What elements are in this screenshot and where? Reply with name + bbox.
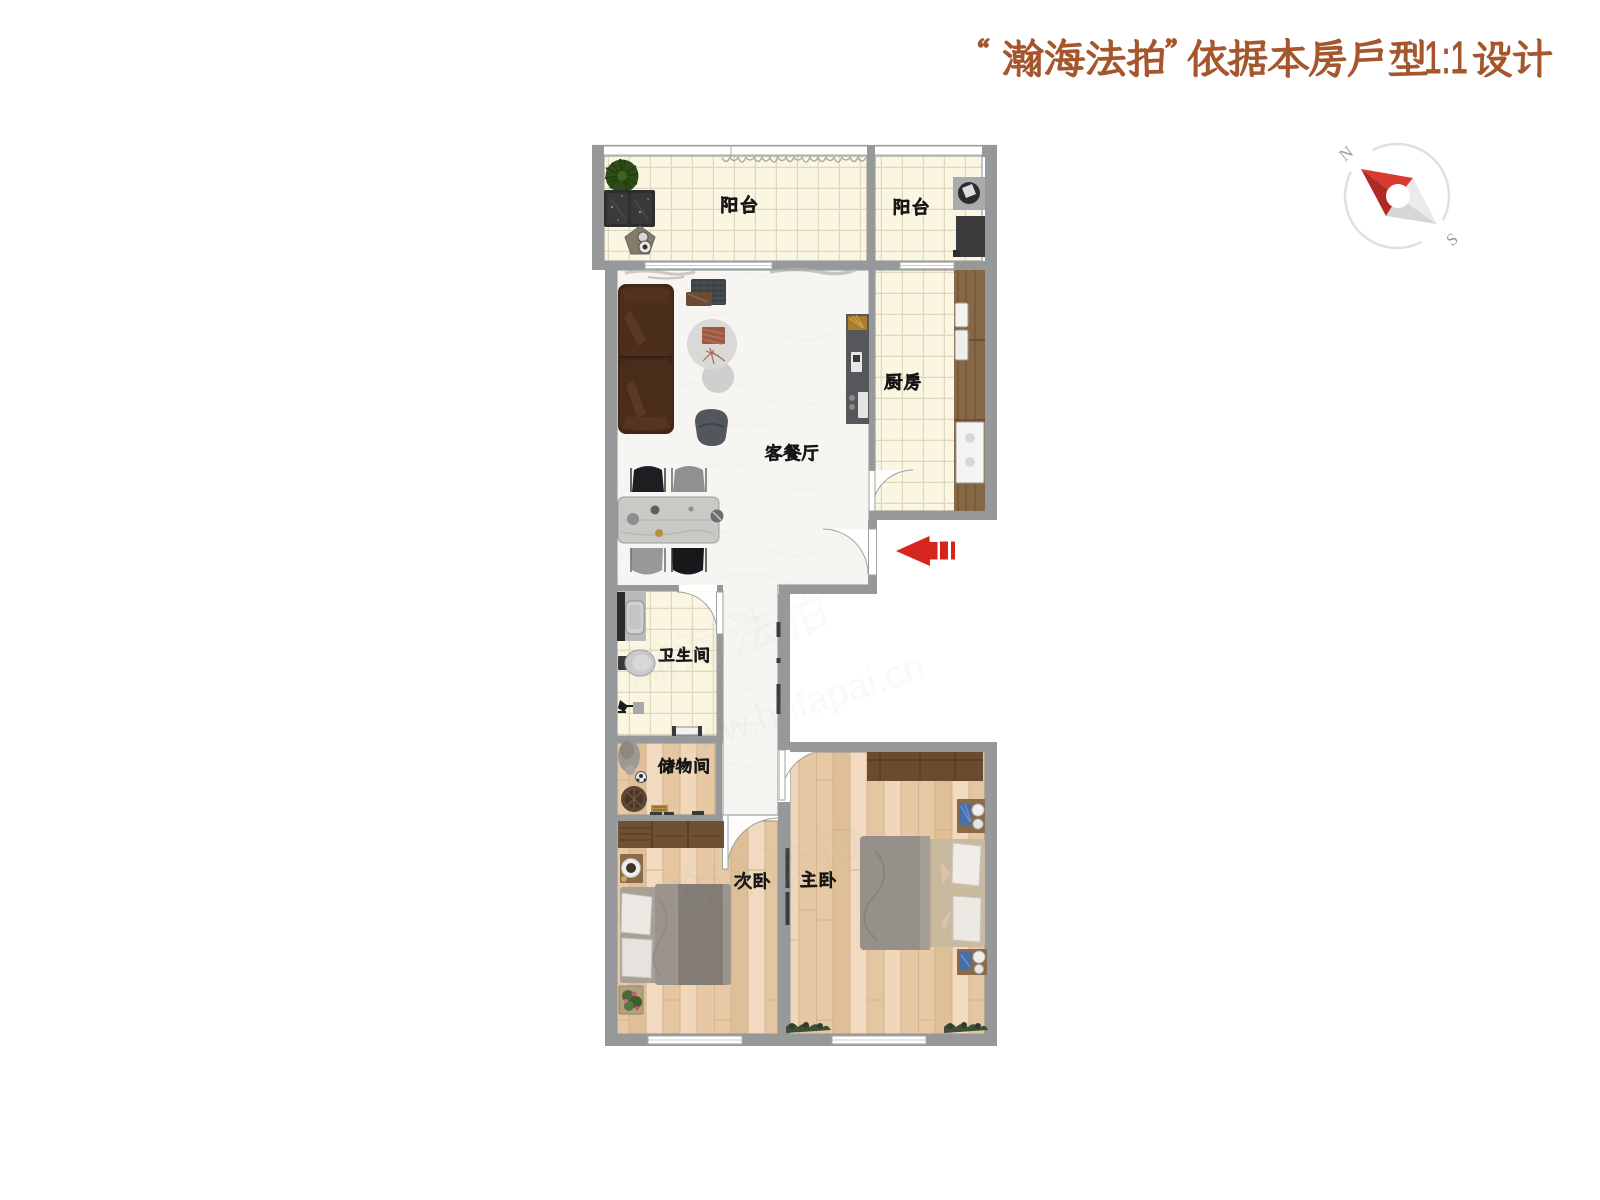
- svg-text:1:1: 1:1: [1424, 32, 1468, 83]
